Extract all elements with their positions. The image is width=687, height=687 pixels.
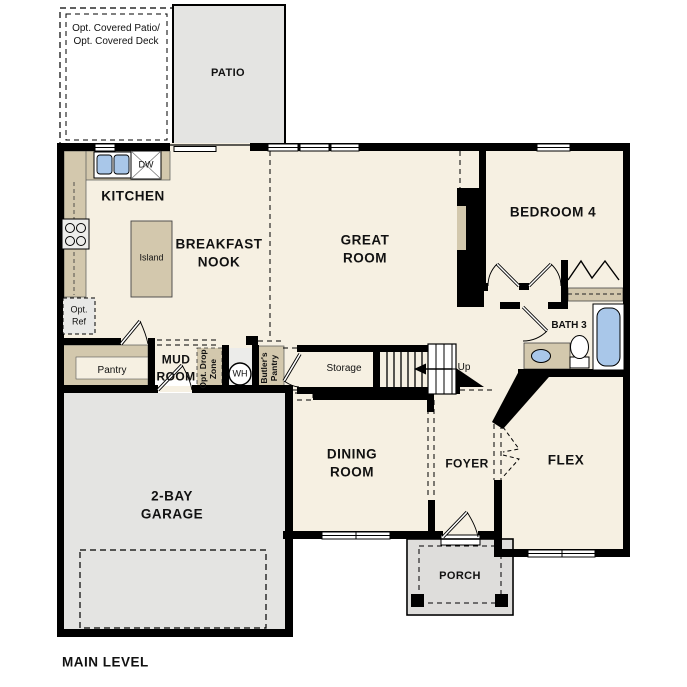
bedroom4-label: BEDROOM 4 — [510, 205, 596, 222]
range-icon — [62, 219, 89, 249]
dining-room-label-line2: ROOM — [330, 465, 374, 482]
porch-post — [495, 594, 508, 607]
floor-plan: Opt. Covered Patio/ Opt. Covered Deck PA… — [0, 0, 687, 687]
opt-patio-label-line1: Opt. Covered Patio/ — [72, 23, 160, 36]
opt-ref-label-line1: Opt. — [70, 304, 87, 315]
foyer-label: FOYER — [445, 457, 488, 472]
opt-drop-zone-label: Opt. Drop Zone — [199, 349, 219, 388]
mud-room-label-line1: MUD — [162, 353, 191, 368]
bath3-label: BATH 3 — [551, 320, 586, 333]
breakfast-nook-label-line2: NOOK — [198, 255, 241, 272]
porch-label: PORCH — [439, 570, 481, 584]
dining-room-label-line1: DINING — [327, 447, 377, 464]
bathtub-icon — [593, 304, 624, 370]
floor-plan-graphics — [0, 0, 687, 687]
fireplace-hearth — [457, 206, 466, 250]
sink-icon — [94, 152, 131, 178]
pantry-label: Pantry — [98, 365, 127, 378]
closet-shelf — [568, 288, 623, 301]
water-heater-label: WH — [233, 368, 248, 379]
great-room-label-line2: ROOM — [343, 251, 387, 268]
great-room-windows — [268, 144, 359, 151]
opt-ref-label-line2: Ref — [72, 316, 86, 327]
mud-room-label-line2: ROOM — [157, 370, 196, 385]
dining-windows — [322, 532, 390, 539]
garage-label-line1: 2-BAY — [151, 489, 193, 506]
garage-label-line2: GARAGE — [141, 507, 203, 524]
sliding-door — [170, 143, 250, 152]
bedroom4-window — [537, 144, 570, 151]
kitchen-label: KITCHEN — [101, 189, 165, 206]
vanity-sink-icon — [532, 350, 551, 363]
flex-windows — [528, 550, 595, 557]
main-level-title: MAIN LEVEL — [62, 655, 149, 672]
butlers-pantry-label: Butler's Pantry — [260, 352, 280, 383]
up-label: Up — [458, 362, 471, 375]
patio-label: PATIO — [211, 67, 245, 81]
toilet-icon — [570, 336, 589, 369]
kitchen-window — [95, 144, 115, 151]
flex-label: FLEX — [548, 453, 585, 470]
dishwasher-label: DW — [139, 159, 154, 170]
porch-post — [411, 594, 424, 607]
storage-label: Storage — [326, 363, 361, 376]
opt-patio-label-line2: Opt. Covered Deck — [73, 36, 158, 49]
great-room-label-line1: GREAT — [341, 233, 390, 250]
island-label: Island — [139, 252, 163, 263]
breakfast-nook-label-line1: BREAKFAST — [175, 237, 262, 254]
